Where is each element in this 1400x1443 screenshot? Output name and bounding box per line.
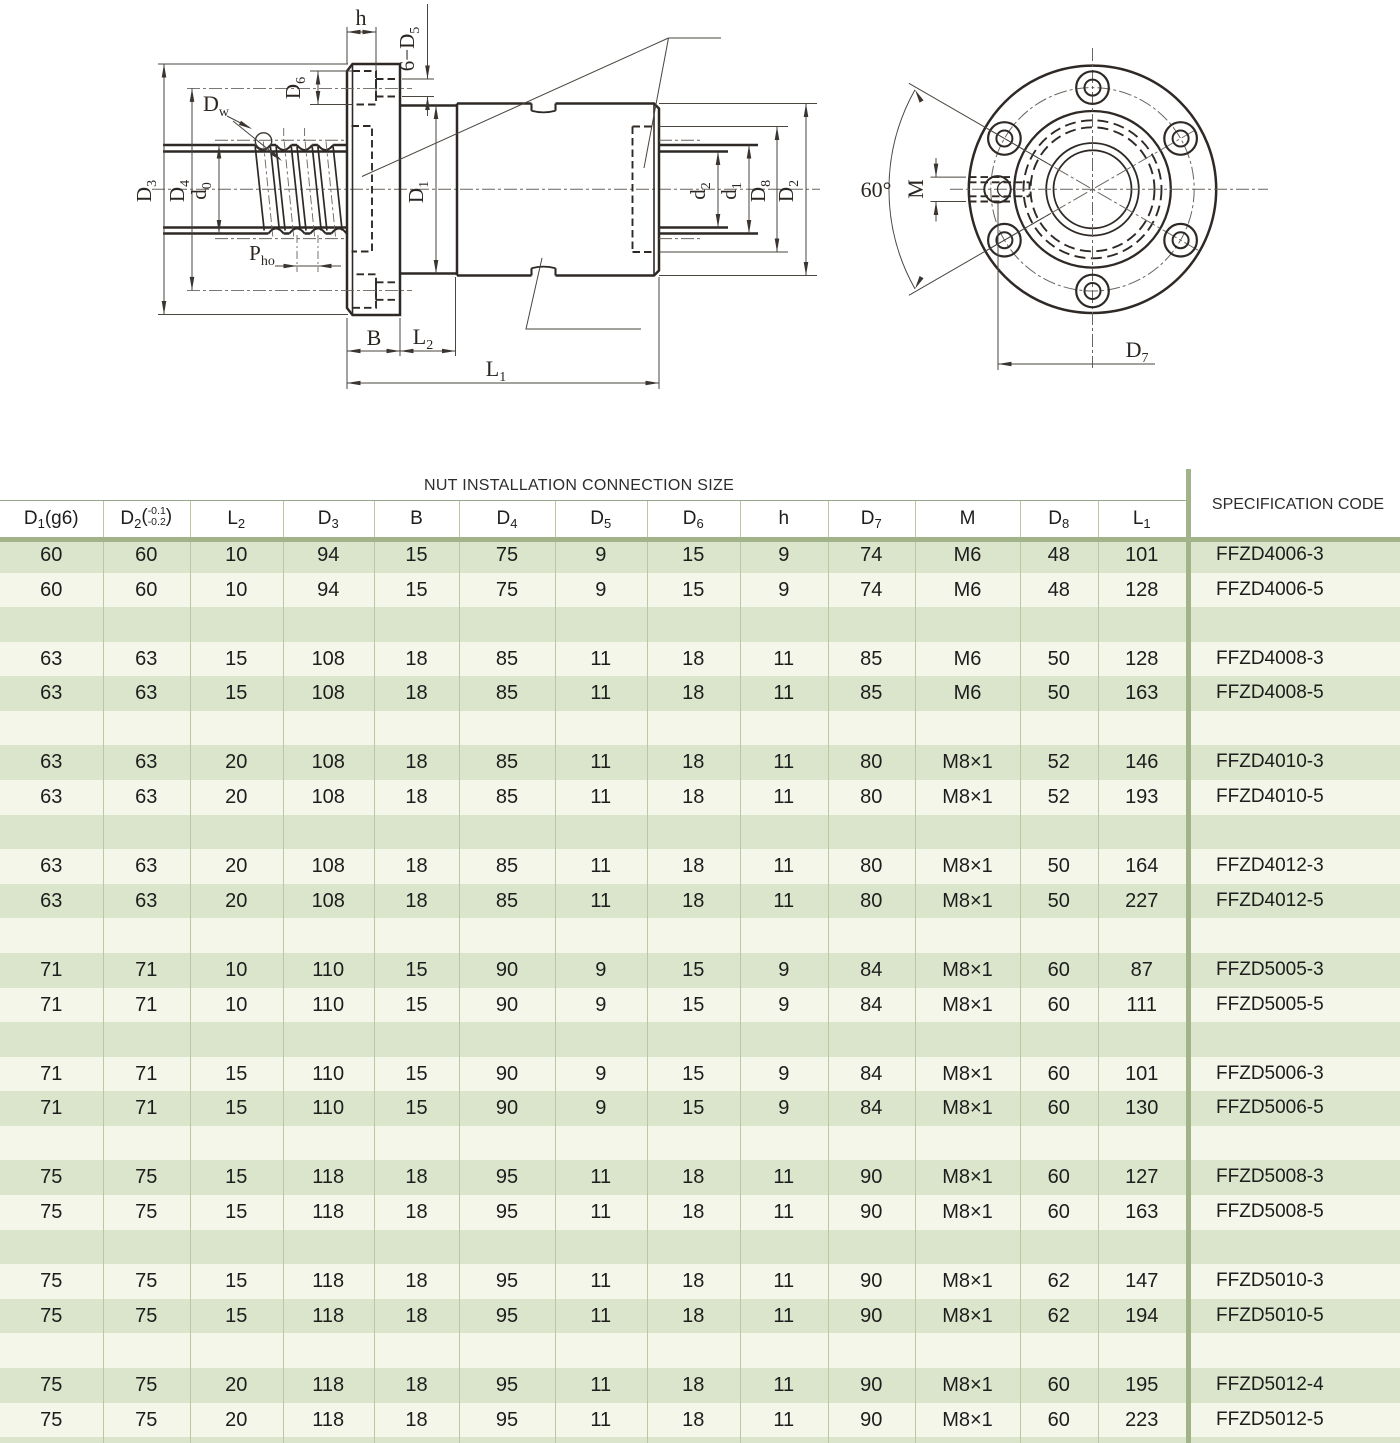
svg-text:D3: D3 xyxy=(132,180,160,202)
svg-text:L2: L2 xyxy=(413,324,433,353)
svg-text:B: B xyxy=(367,325,382,350)
svg-text:h: h xyxy=(356,5,367,30)
svg-text:D7: D7 xyxy=(1126,337,1149,366)
svg-text:Pho: Pho xyxy=(249,241,275,269)
svg-text:M: M xyxy=(903,179,928,199)
svg-text:d2: d2 xyxy=(686,182,714,200)
svg-text:D6: D6 xyxy=(281,77,309,99)
svg-text:d1: d1 xyxy=(717,182,745,200)
svg-text:D2: D2 xyxy=(774,180,802,202)
svg-text:D1: D1 xyxy=(404,181,432,203)
svg-text:60°: 60° xyxy=(861,177,892,202)
svg-text:L1: L1 xyxy=(486,356,506,385)
svg-text:Dw: Dw xyxy=(203,91,230,120)
svg-text:D8: D8 xyxy=(746,180,774,202)
svg-text:6−D5: 6−D5 xyxy=(395,27,423,72)
